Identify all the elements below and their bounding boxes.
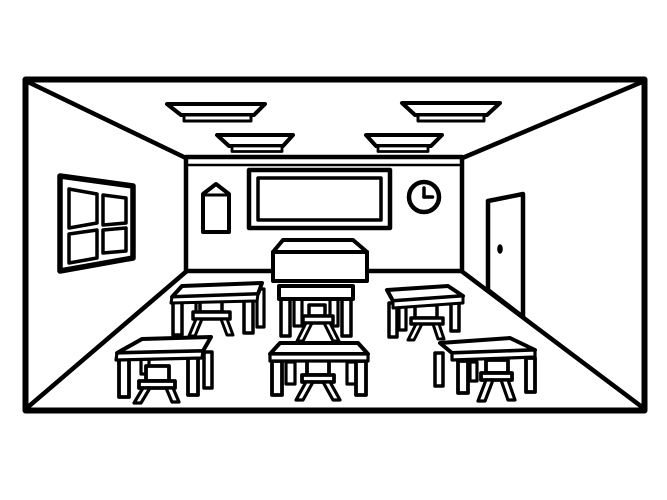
desk-back-center-front-leg-left	[281, 298, 290, 336]
ceiling-edge-right	[460, 82, 642, 159]
desk-back-left-stool-leg-left	[189, 319, 202, 336]
desk-back-left-tabletop-edge	[171, 294, 258, 303]
desk-front-right-rear-leg-mid	[470, 362, 477, 381]
desk-front-left-front-leg-left	[119, 357, 129, 397]
desk-front-right-front-leg-right	[526, 358, 535, 392]
teacher-desk-front	[273, 252, 367, 281]
desk-front-left-front-leg-right	[188, 355, 198, 395]
desk-front-right-tabletop-edge	[452, 350, 535, 360]
door	[488, 194, 523, 317]
classroom-coloring-page	[0, 0, 667, 500]
desk-back-right-stool-leg-left	[408, 324, 422, 340]
desk-front-left-tabletop-edge	[116, 351, 203, 360]
desk-back-center-rear-leg-left	[294, 299, 302, 326]
window-pane-top-left	[69, 189, 97, 228]
ceiling-light-upper-right-base	[418, 115, 484, 121]
desk-front-right-rear-leg-left	[435, 353, 443, 386]
desk-front-right-stool-back	[486, 360, 508, 373]
ceiling-edge-left	[28, 82, 188, 159]
ceiling-light-lower-left-shade	[217, 135, 293, 146]
ceiling-light-lower-right-base	[378, 146, 428, 152]
desk-front-center-front-leg-left	[272, 361, 282, 395]
door-knob	[497, 244, 503, 254]
desk-back-center-tabletop	[279, 286, 353, 299]
ceiling-light-upper-left-shade	[167, 104, 265, 115]
desk-back-center-front-leg-right	[342, 298, 351, 336]
ceiling-light-lower-left-base	[232, 146, 282, 152]
desk-front-center-rear-leg-left	[286, 362, 295, 384]
desk-front-center-tabletop	[270, 343, 368, 354]
ceiling-light-upper-right-shade	[402, 103, 500, 115]
desk-front-left-stool-back	[146, 366, 169, 381]
desk-front-center-stool-leg-right	[323, 382, 340, 400]
desk-front-center-stool-leg-left	[296, 382, 313, 400]
desk-front-left-rear-leg-right	[204, 352, 212, 388]
window-pane-top-right	[103, 195, 126, 225]
ceiling-light-upper-left-base	[184, 115, 251, 121]
poster	[203, 184, 229, 232]
desk-front-right-stool-leg-left	[478, 380, 493, 401]
desk-front-right-stool-leg-right	[501, 380, 515, 400]
window-pane-bottom-left	[69, 230, 97, 263]
desk-back-right-stool-leg-right	[433, 324, 444, 339]
window-pane-bottom-right	[103, 228, 126, 253]
desk-front-right-front-leg-left	[458, 361, 468, 393]
desk-front-left-stool-leg-left	[134, 388, 150, 403]
desk-front-left-stool-leg-right	[166, 388, 179, 402]
desk-back-left-stool-leg-right	[221, 319, 233, 335]
ceiling-light-lower-right-shade	[366, 135, 442, 146]
desk-front-center-front-leg-right	[356, 361, 366, 395]
desk-front-center-tabletop-edge	[270, 354, 368, 361]
classroom-illustration	[0, 0, 667, 500]
